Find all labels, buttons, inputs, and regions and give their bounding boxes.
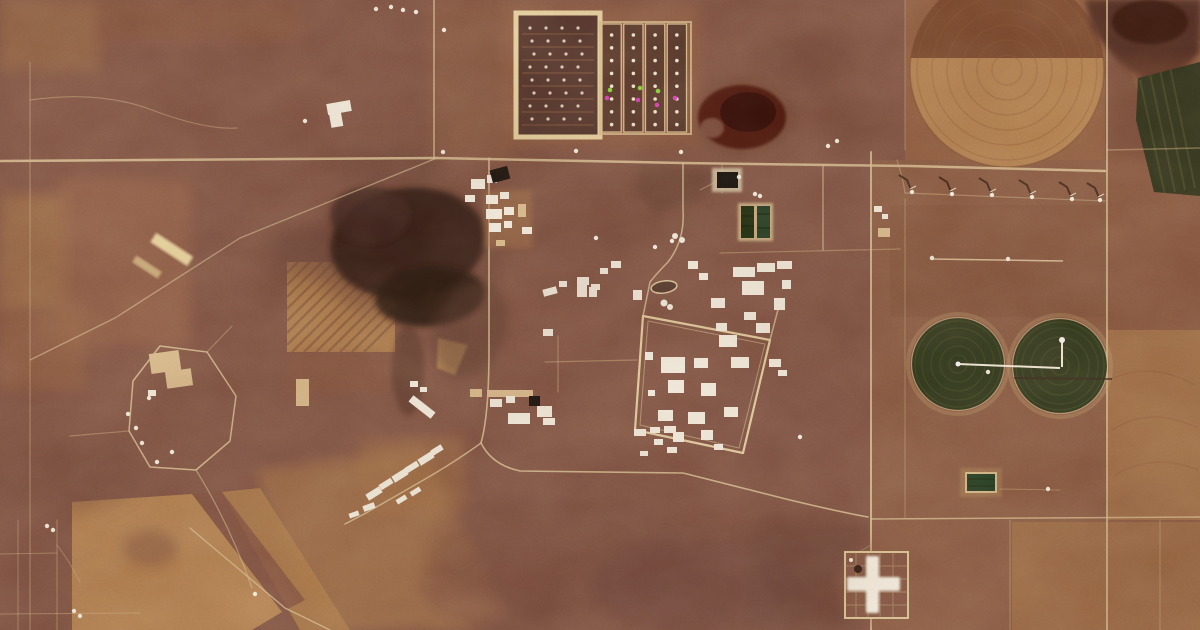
color-cast-overlay bbox=[0, 0, 1200, 630]
satellite-scene bbox=[0, 0, 1200, 630]
satellite-image bbox=[0, 0, 1200, 630]
texture-overlays bbox=[0, 0, 1200, 630]
